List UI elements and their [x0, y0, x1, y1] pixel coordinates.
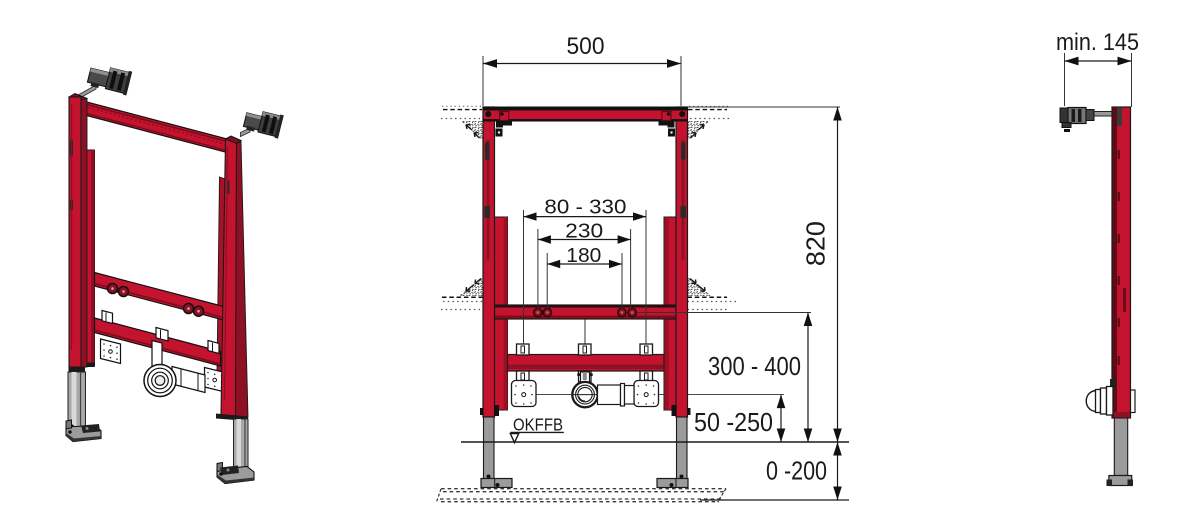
svg-text:820: 820: [803, 221, 831, 266]
svg-text:230: 230: [565, 220, 603, 243]
svg-text:80 - 330: 80 - 330: [544, 195, 626, 218]
svg-text:500: 500: [567, 34, 605, 60]
svg-text:50 -250: 50 -250: [694, 409, 773, 437]
svg-text:0 -200: 0 -200: [766, 458, 827, 486]
svg-text:min. 145: min. 145: [1056, 30, 1139, 56]
svg-text:300 - 400: 300 - 400: [708, 353, 801, 381]
svg-text:OKFFB: OKFFB: [513, 414, 563, 434]
svg-text:180: 180: [566, 244, 601, 267]
